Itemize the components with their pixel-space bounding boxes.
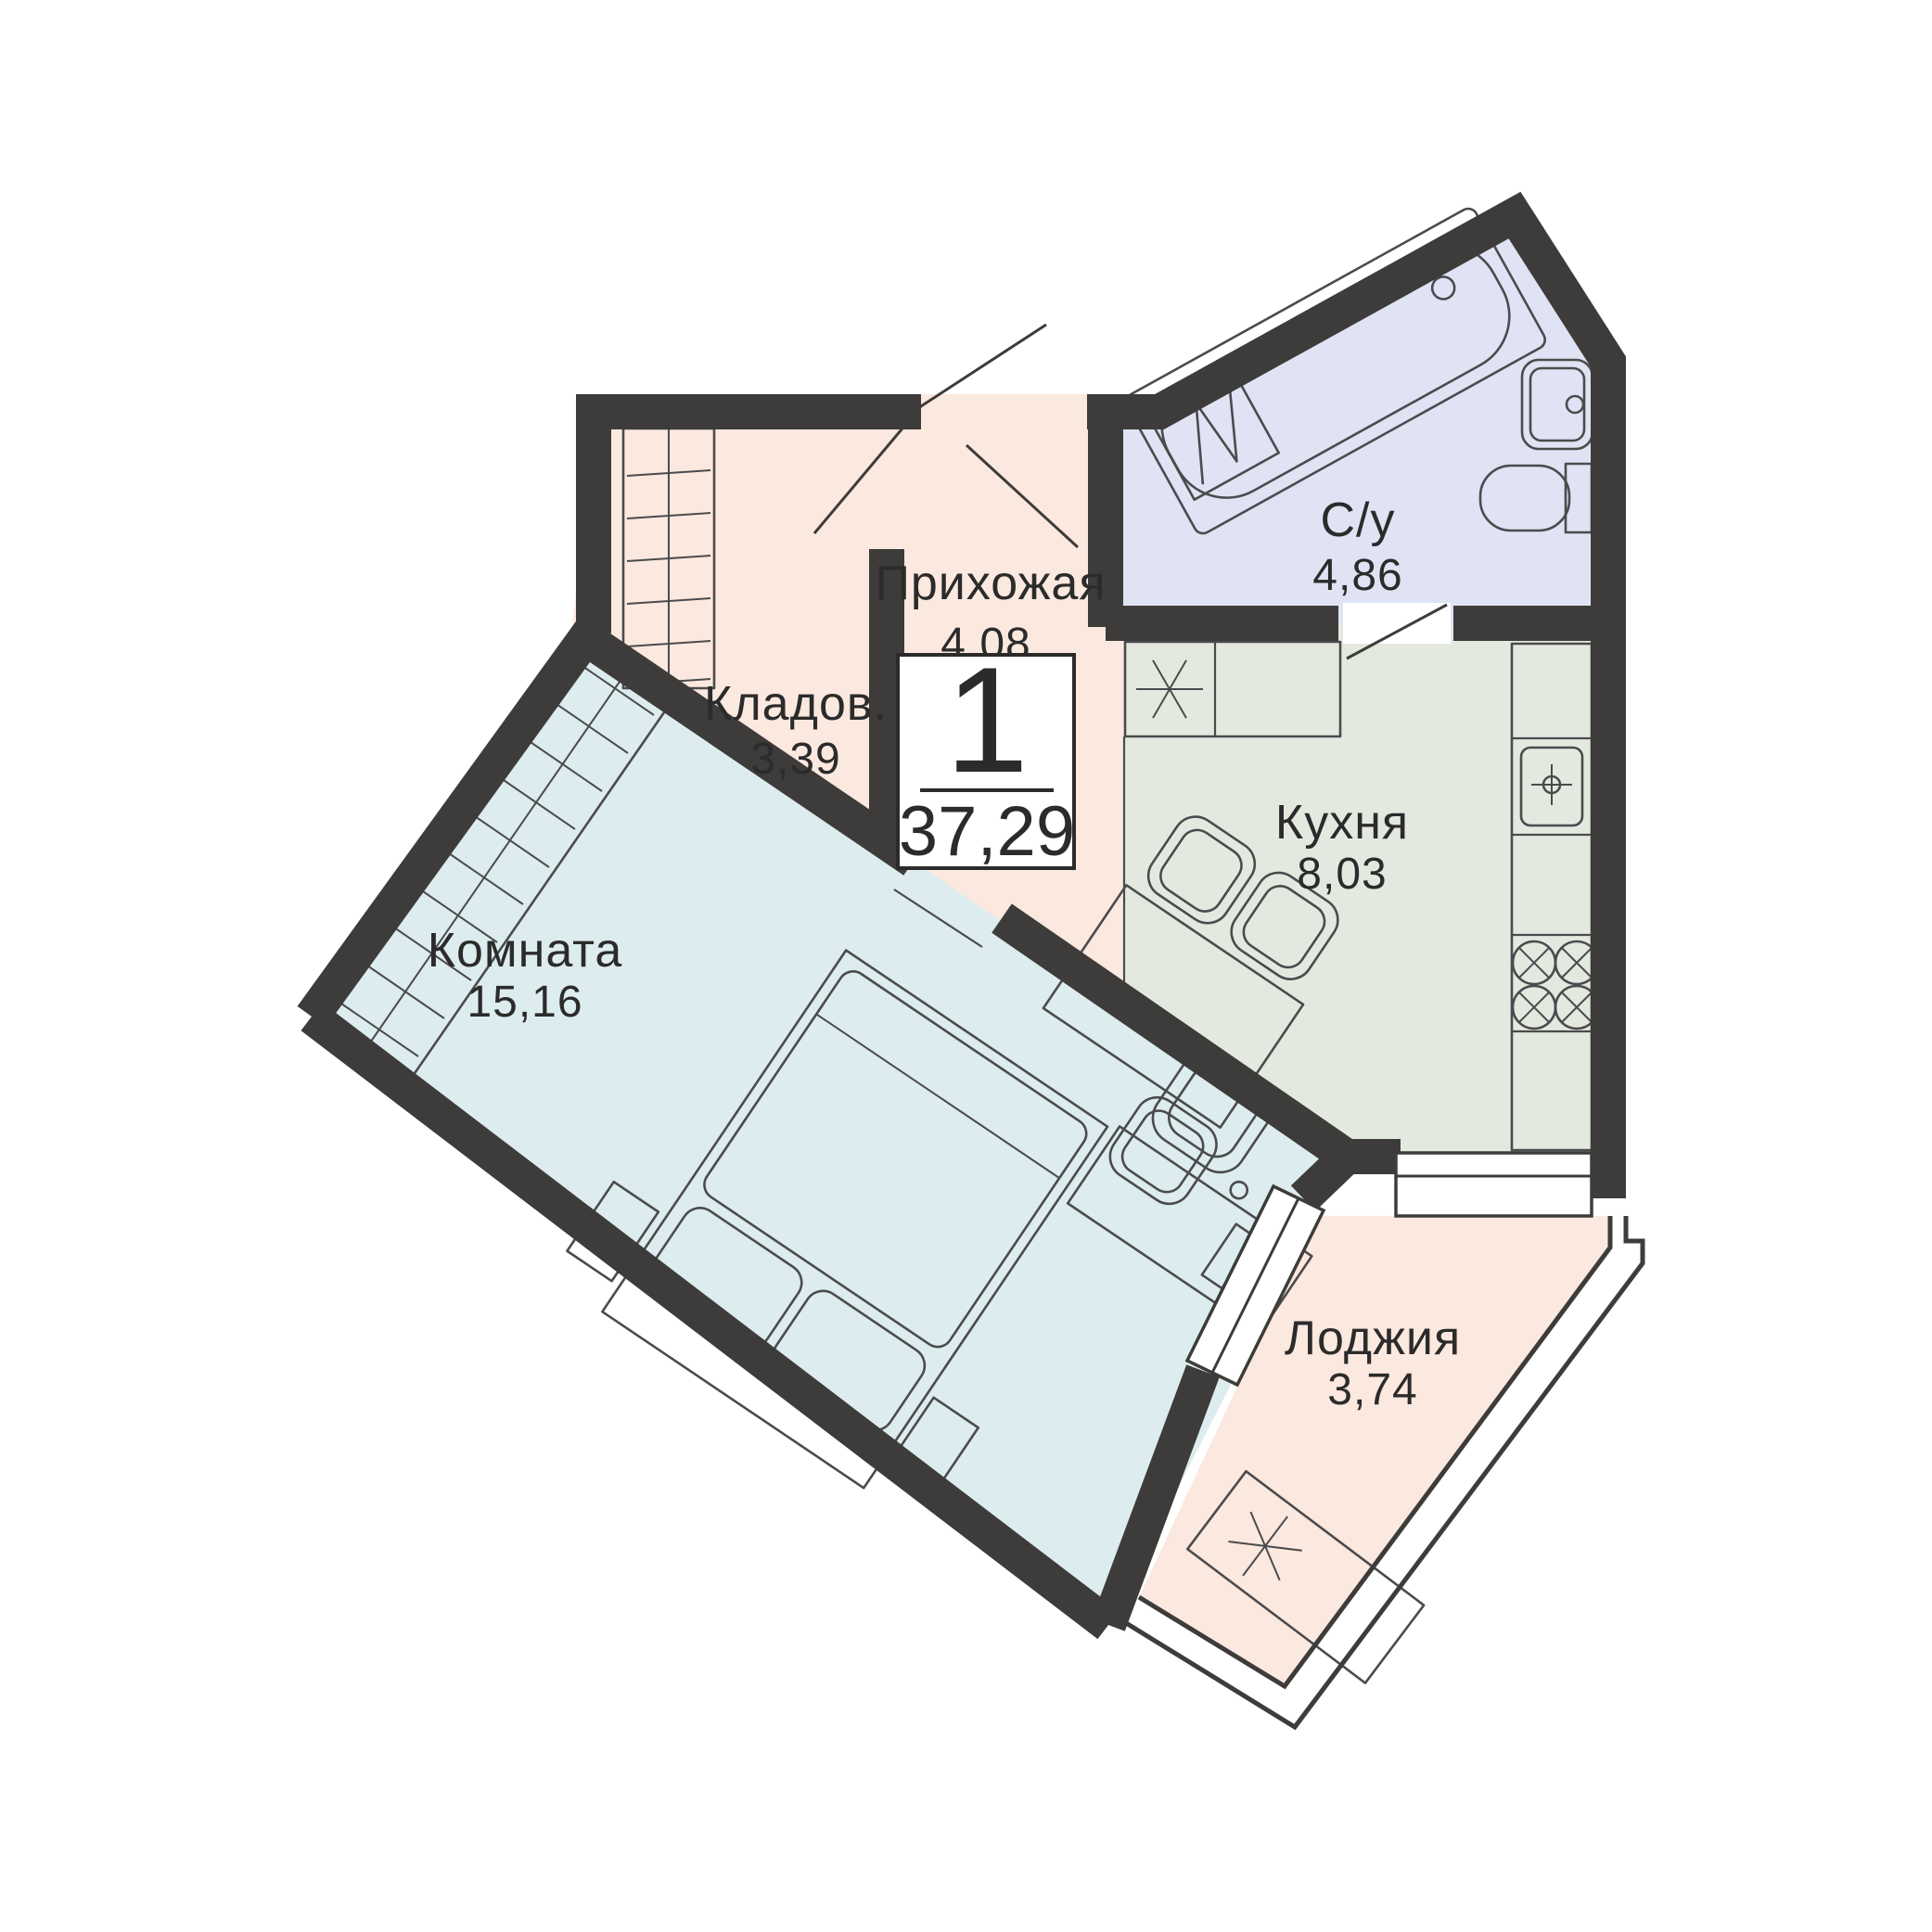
total-area: 37,29	[899, 792, 1075, 871]
unit-badge: 1 37,29	[898, 636, 1075, 871]
bathroom-area: 4,86	[1312, 551, 1402, 600]
bathroom-label: С/у	[1321, 493, 1396, 547]
living-room-label: Комната	[428, 924, 623, 978]
storage-area: 3,39	[750, 735, 840, 784]
kitchen-label: Кухня	[1275, 796, 1409, 850]
kitchen-loggia-window	[1396, 1153, 1592, 1216]
loggia-area: 3,74	[1327, 1365, 1417, 1414]
hallway-label: Прихожая	[876, 557, 1107, 610]
floor-plan: Прихожая 4,08 Кладов. 3,39 С/у 4,86 Кухн…	[0, 0, 1932, 1932]
kitchen-area: 8,03	[1297, 850, 1387, 899]
entrance-gap-floor	[921, 394, 1087, 431]
storage-label: Кладов.	[704, 677, 888, 731]
living-room-area: 15,16	[467, 978, 582, 1027]
loggia-label: Лоджия	[1285, 1311, 1461, 1365]
rooms-count: 1	[945, 636, 1029, 804]
